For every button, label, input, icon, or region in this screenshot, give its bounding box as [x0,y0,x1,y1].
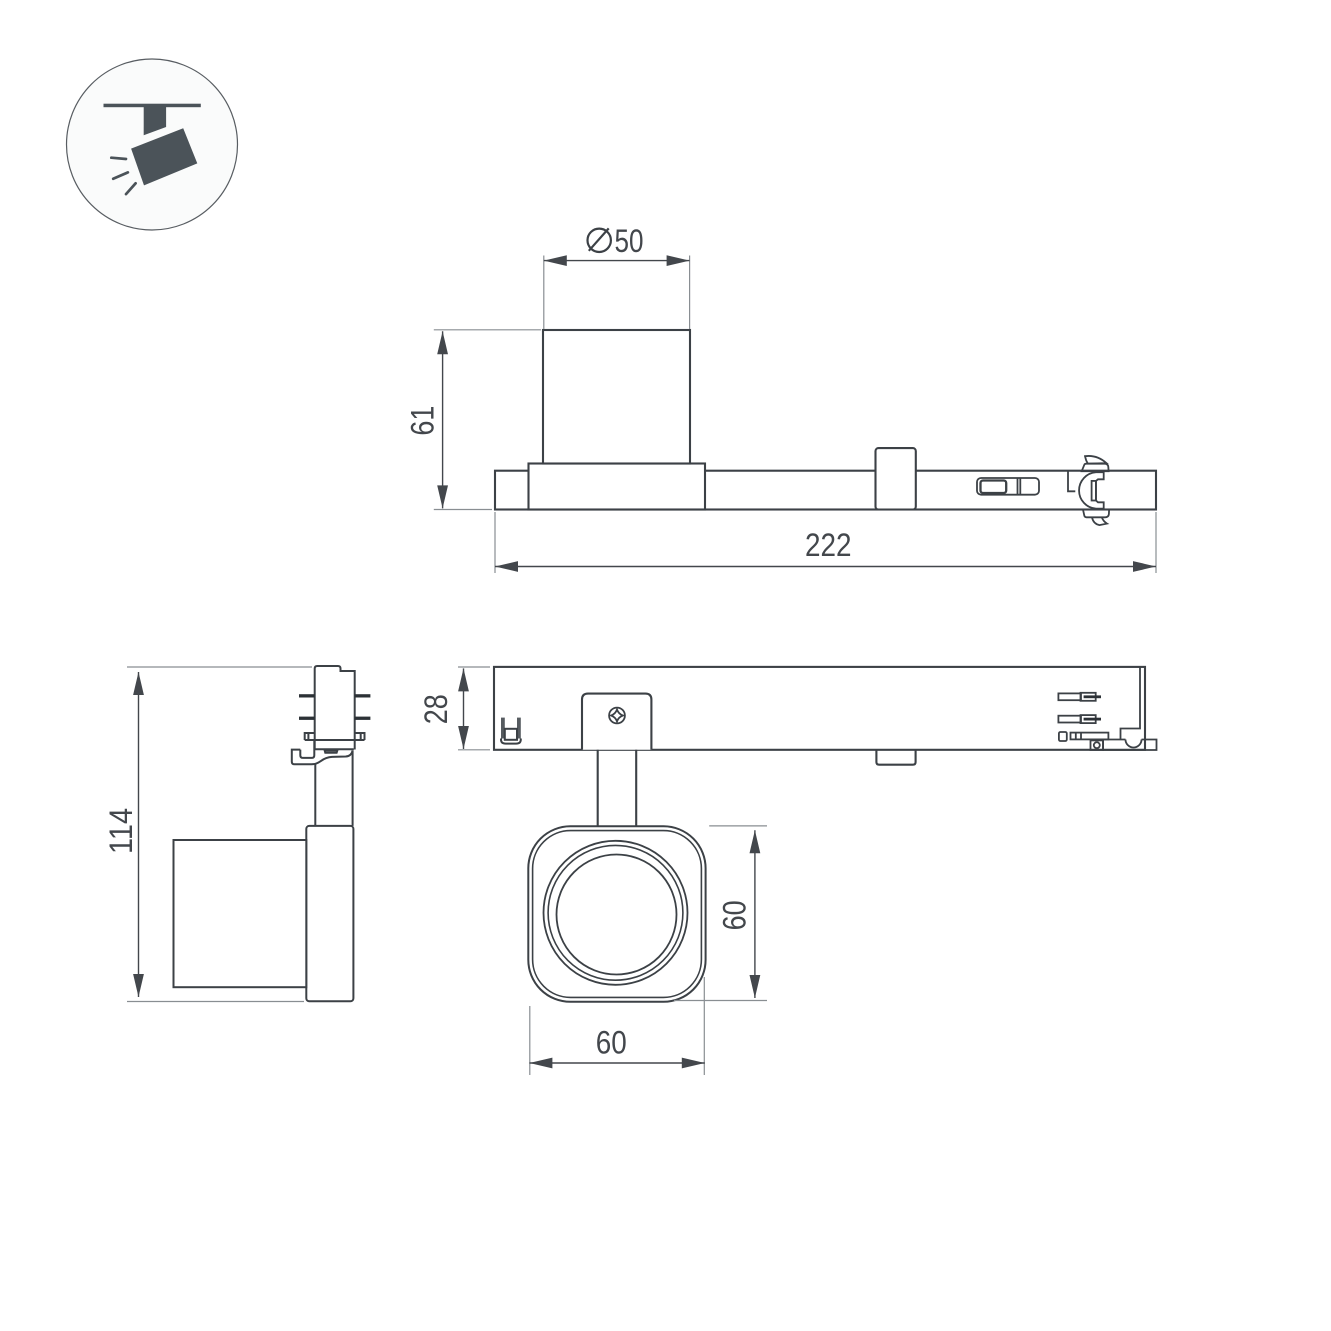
svg-text:222: 222 [805,527,852,563]
svg-text:61: 61 [405,406,441,436]
svg-text:60: 60 [596,1025,627,1061]
svg-text:28: 28 [418,694,454,724]
svg-text:60: 60 [716,900,752,930]
svg-text:114: 114 [103,808,139,854]
svg-text:50: 50 [615,223,644,259]
